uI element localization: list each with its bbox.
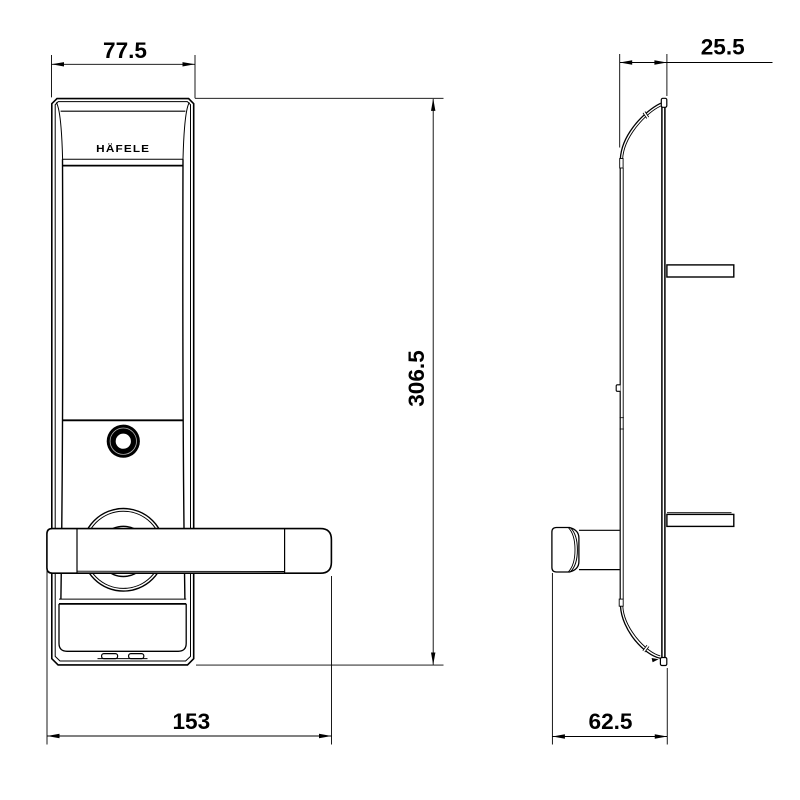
svg-text:153: 153 <box>172 709 210 734</box>
svg-text:HÄFELE: HÄFELE <box>96 142 150 155</box>
svg-text:25.5: 25.5 <box>701 34 745 59</box>
svg-text:306.5: 306.5 <box>404 350 429 407</box>
svg-text:77.5: 77.5 <box>103 38 147 63</box>
svg-text:62.5: 62.5 <box>589 709 633 734</box>
